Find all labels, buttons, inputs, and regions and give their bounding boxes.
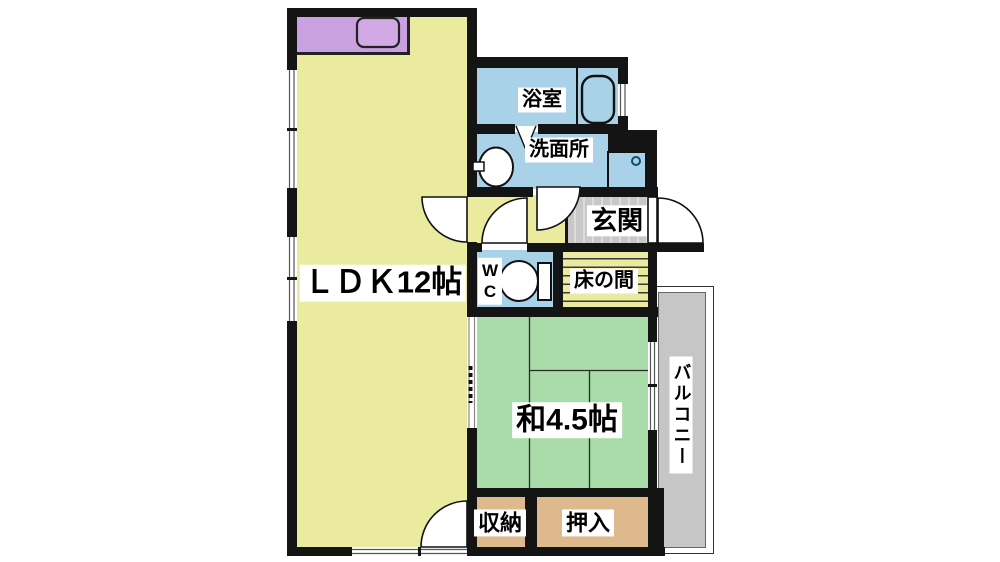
door-entrance — [658, 198, 703, 243]
window-ldk-bottom — [352, 547, 467, 556]
pan-drain — [632, 157, 640, 165]
label-entrance: 玄関 — [587, 205, 647, 236]
window-ldk-left-upper — [287, 70, 297, 188]
window-ldk-left-lower — [287, 237, 297, 321]
label-wc: W C — [478, 258, 502, 305]
label-japanese-room: 和4.5帖 — [512, 402, 622, 438]
washing-machine-pan — [608, 152, 646, 188]
label-storage: 収納 — [474, 509, 526, 536]
floor-plan: ＬＤＫ12帖 浴室 洗面所 玄関 W C 床の間 和4.5帖 収納 押入 バルコ… — [0, 0, 1000, 562]
label-bathroom: 浴室 — [518, 88, 566, 113]
hallway — [467, 195, 567, 244]
label-washroom: 洗面所 — [525, 138, 593, 163]
kitchen-counter — [297, 17, 410, 55]
label-balcony: バルコニー — [670, 357, 693, 474]
label-closet: 押入 — [562, 509, 614, 536]
label-ldk: ＬＤＫ12帖 — [300, 265, 466, 302]
label-tokonoma: 床の間 — [570, 269, 638, 294]
